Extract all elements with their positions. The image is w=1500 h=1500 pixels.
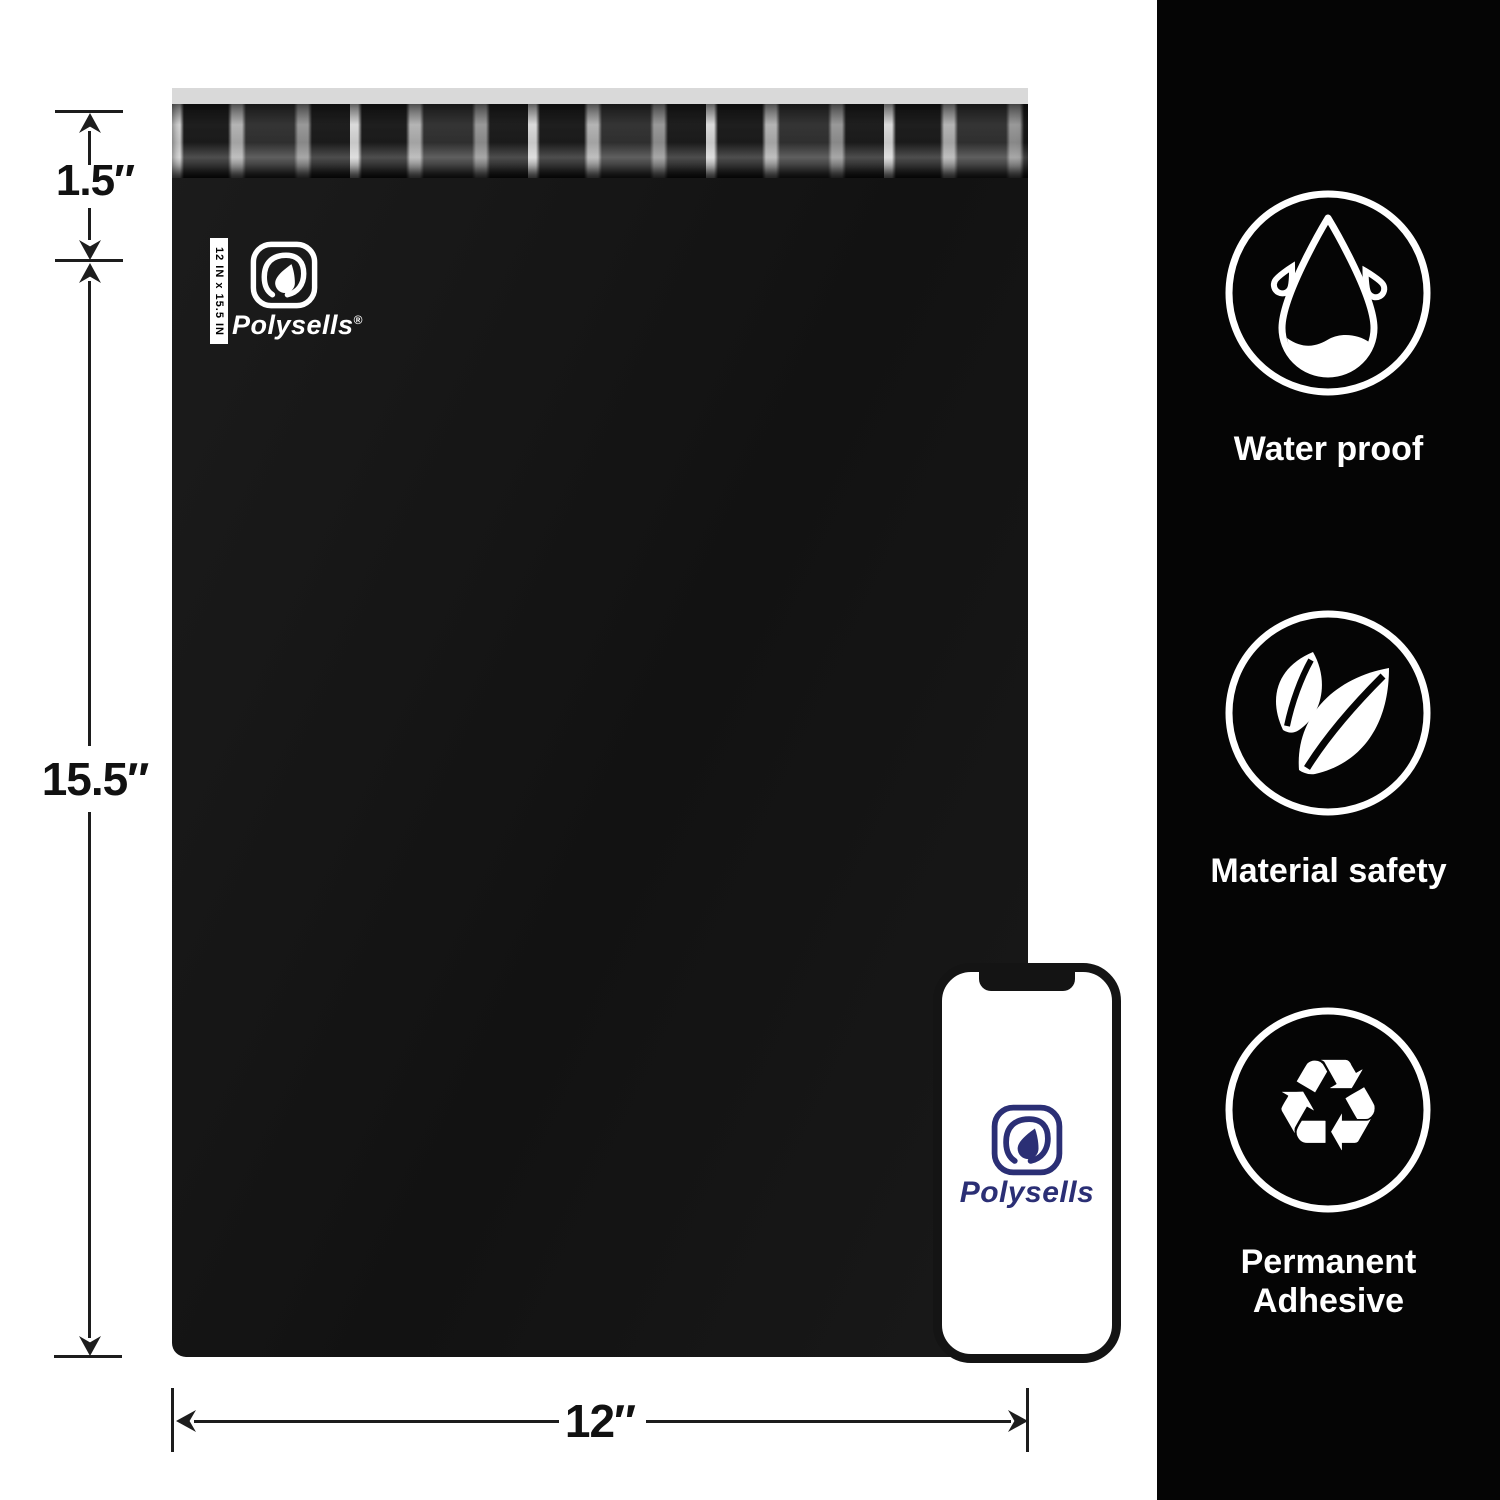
release-liner-strip [172, 88, 1028, 104]
dim-line-width-b [646, 1420, 1011, 1423]
dim-line-height-a [88, 281, 91, 746]
dim-arrow-down-flap [79, 240, 101, 260]
phone-notch [979, 971, 1075, 991]
features-sidebar: Water proof Material safety ♻ Permanent … [1157, 0, 1500, 1500]
dim-tick-mid [55, 259, 123, 262]
phone-mockup: Polysells [933, 963, 1121, 1363]
dim-arrow-up-flap [79, 113, 101, 133]
registered-mark: ® [354, 313, 363, 327]
feature-label-permanent-adhesive: Permanent Adhesive [1157, 1243, 1500, 1321]
dim-arrow-down-height [79, 1336, 101, 1356]
bag-height-label: 15.5″ [15, 752, 175, 806]
size-tag-label: 12 IN x 15.5 IN [210, 238, 228, 344]
brand-name: Polysells [232, 310, 354, 340]
recycle-glyph: ♻ [1223, 1005, 1433, 1215]
dim-tick-left [171, 1388, 174, 1452]
dim-tick-right [1026, 1388, 1029, 1452]
dim-tick-top [55, 110, 123, 113]
dim-tick-bottom [54, 1355, 122, 1358]
polysells-logo-icon [250, 240, 318, 310]
recycle-icon: ♻ [1223, 1005, 1433, 1215]
dim-line-width-a [194, 1420, 559, 1423]
poly-mailer-bag: 12 IN x 15.5 IN Polysells® [172, 88, 1028, 1357]
dim-line-flap-b [88, 208, 91, 240]
product-image: 12 IN x 15.5 IN Polysells® 1.5″ 15.5″ 12… [0, 0, 1500, 1500]
feature-label-waterproof: Water proof [1157, 430, 1500, 469]
adhesive-seal-strip [172, 104, 1028, 178]
dim-arrow-right-width [1008, 1410, 1028, 1432]
dim-arrow-up-height [79, 263, 101, 283]
leaf-icon [1223, 608, 1433, 818]
water-drop-icon [1223, 188, 1433, 398]
dim-arrow-left-width [176, 1410, 196, 1432]
phone-brand-text: Polysells [942, 1176, 1112, 1210]
polysells-logo-icon [991, 1104, 1063, 1176]
feature-label-material-safety: Material safety [1157, 852, 1500, 891]
flap-height-label: 1.5″ [35, 156, 155, 206]
brand-wordmark: Polysells® [232, 310, 382, 341]
dim-line-height-b [88, 812, 91, 1338]
